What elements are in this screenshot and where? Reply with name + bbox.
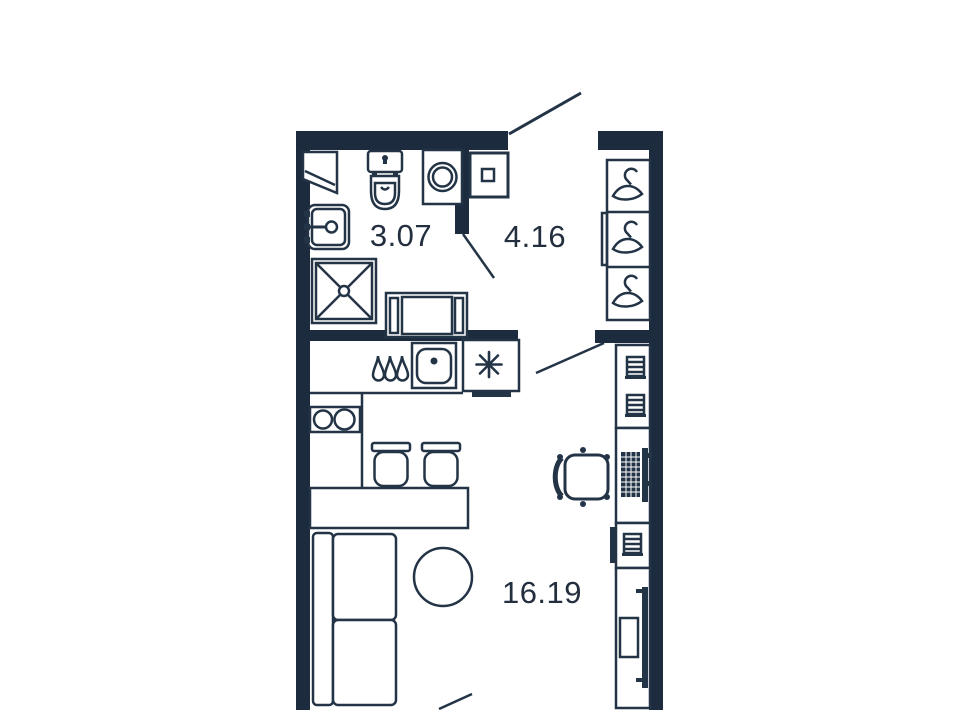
wardrobe-icon	[602, 160, 650, 320]
kitchen-sink-icon	[412, 343, 456, 388]
washing-machine-icon	[423, 150, 462, 204]
stool-icon	[372, 443, 410, 486]
desk-icon	[616, 428, 652, 523]
toilet-icon	[368, 151, 402, 209]
vanity-cabinet-icon	[386, 293, 467, 337]
kitchen-table-icon	[310, 488, 468, 528]
fridge-asterisk-icon	[463, 340, 519, 397]
round-table-icon	[414, 548, 472, 606]
hallway-area-label: 4.16	[504, 219, 566, 254]
cabinet-unit	[610, 523, 650, 568]
wall-hallway-bottom	[595, 330, 650, 343]
stool-icon	[422, 443, 460, 486]
wash-basin-icon	[304, 205, 349, 249]
shelf-unit	[616, 345, 650, 428]
electrical-panel-icon	[470, 153, 508, 197]
keyboard-icon	[621, 452, 640, 497]
two-burner-hob-icon	[310, 407, 360, 432]
bathroom-area-label: 3.07	[370, 218, 432, 253]
sofa-icon	[313, 533, 396, 705]
tv-stand-icon	[616, 568, 650, 708]
floor-plan-page: 3.07 4.16 16.19	[0, 0, 960, 710]
floor-plan-svg: 3.07 4.16 16.19	[0, 0, 960, 710]
wall-top-left-segment	[296, 131, 508, 150]
shower-icon	[312, 259, 376, 323]
living-area-label: 16.19	[502, 575, 582, 610]
